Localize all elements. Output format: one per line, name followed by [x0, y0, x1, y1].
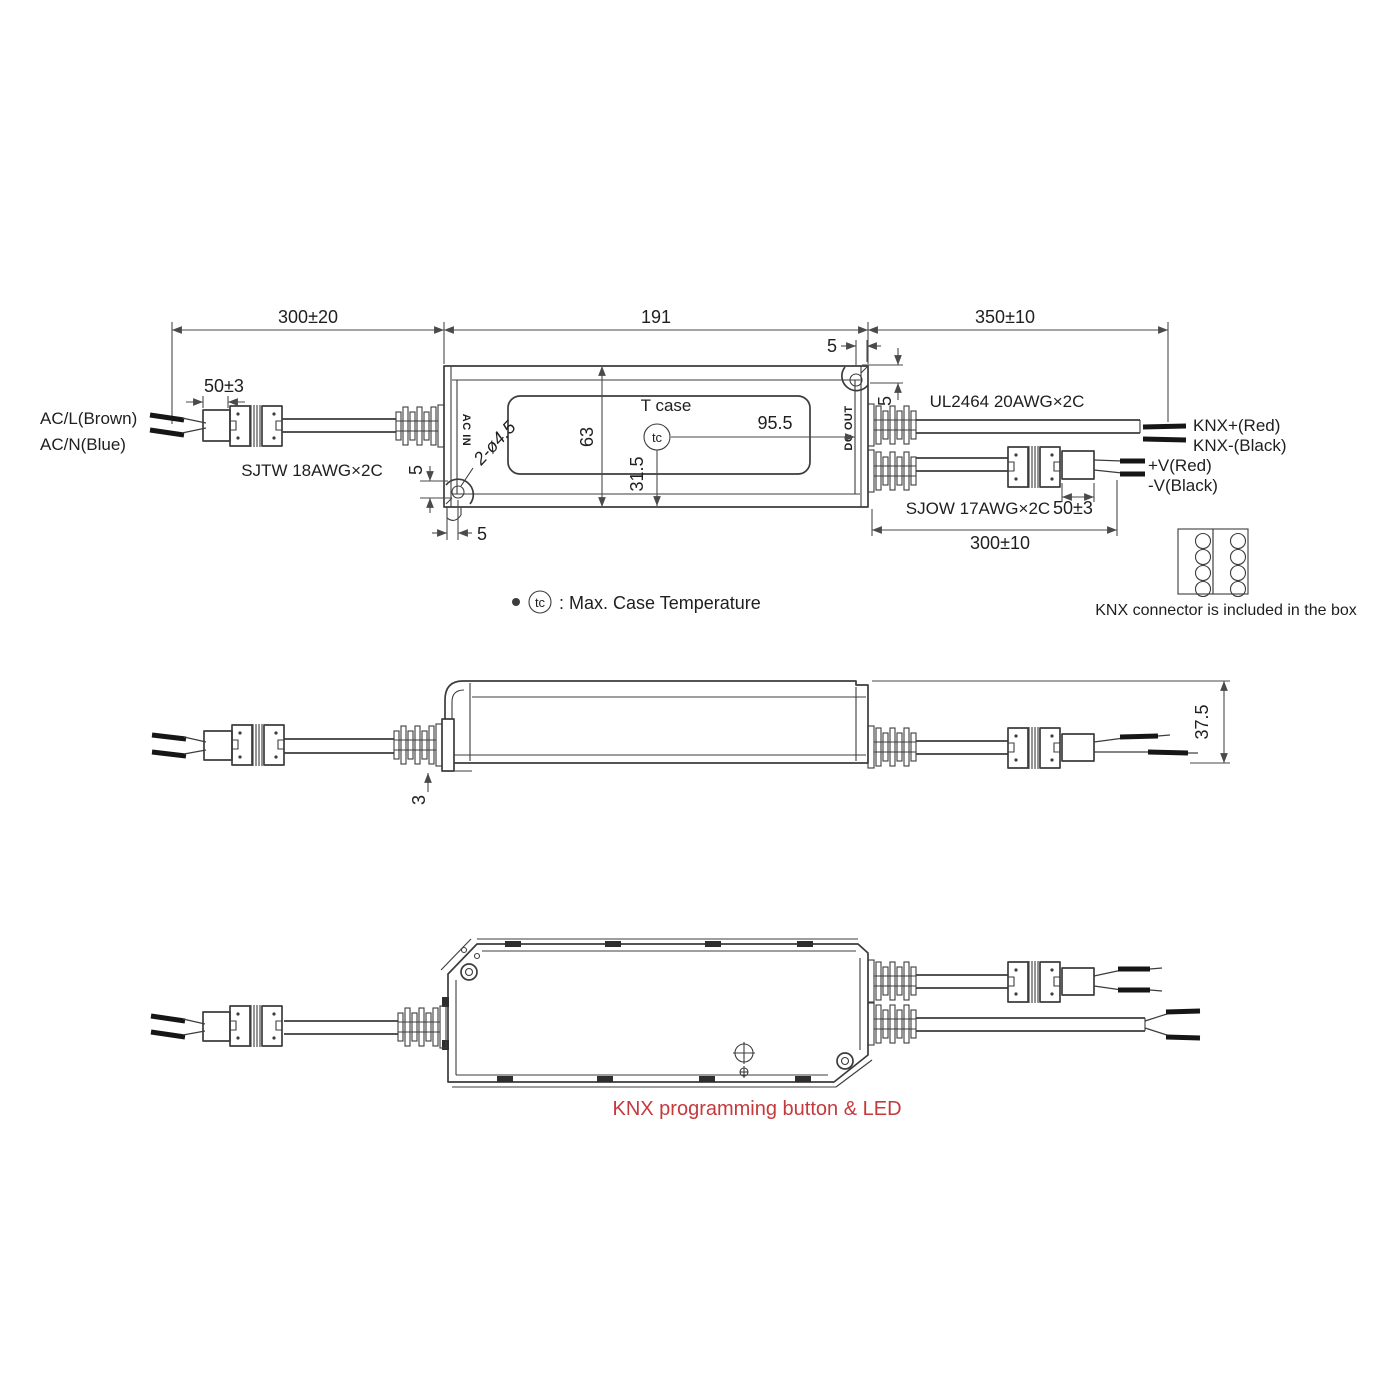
svg-text:5: 5 [875, 396, 895, 406]
output-cable-type: SJOW 17AWG×2C [906, 499, 1050, 518]
knx-plus-label: KNX+(Red) [1193, 416, 1280, 435]
knx-cable-assembly: UL2464 20AWG×2C KNX+(Red) KNX-(Black) [868, 392, 1287, 455]
svg-text:5: 5 [477, 524, 487, 544]
tcase-title: T case [641, 396, 692, 415]
bottom-caption: KNX programming button & LED [612, 1098, 901, 1120]
dim-95-5: 95.5 [757, 413, 792, 433]
input-cable-type: SJTW 18AWG×2C [241, 461, 383, 480]
knx-connector-icon [1178, 529, 1248, 597]
output-strain-relief [868, 450, 916, 492]
svg-text:63: 63 [577, 427, 597, 447]
side-output-connector [1008, 727, 1060, 769]
notes: tc : Max. Case Temperature KNX connector… [512, 529, 1357, 619]
dim-height-63: 63 [577, 366, 602, 507]
ac-in-label: AC IN [460, 414, 472, 446]
technical-drawing: AC IN DC OUT T case tc 95.5 31.5 63 2-ø4… [0, 0, 1400, 1400]
bottom-output-strain-relief [868, 960, 916, 1002]
knx-minus-label: KNX-(Black) [1193, 436, 1287, 455]
cable-sleeve [203, 410, 230, 441]
bottom-case [448, 944, 868, 1082]
bottom-input-connector [230, 1005, 282, 1047]
svg-text:5: 5 [827, 336, 837, 356]
bottom-output-connector [1008, 961, 1060, 1003]
output-ferrule [1062, 451, 1094, 479]
output-cable-assembly: +V(Red) -V(Black) SJOW 17AWG×2C 50±3 300… [868, 446, 1218, 553]
input-strain-relief [396, 405, 444, 447]
dim-31-5: 31.5 [627, 456, 647, 491]
side-case [445, 681, 868, 763]
knx-cable-type: UL2464 20AWG×2C [930, 392, 1085, 411]
dim-input-length: 300±20 [278, 307, 338, 327]
svg-text:2-ø4.5: 2-ø4.5 [469, 416, 520, 469]
dim-output-cable: 300±10 [970, 533, 1030, 553]
tcase-marking: T case tc 95.5 31.5 [627, 396, 855, 506]
dim-case-height: 37.5 [1192, 704, 1212, 739]
bottom-view: KNX programming button & LED [151, 939, 1200, 1120]
v-plus-label: +V(Red) [1148, 456, 1212, 475]
dim-ear-top-right: 5 5 [827, 336, 903, 406]
output-connector [1008, 446, 1060, 488]
acl-label: AC/L(Brown) [40, 409, 137, 428]
input-cable-assembly: 50±3 AC/L(Brown) AC/N(Blue) SJTW 18AWG×2… [40, 376, 444, 480]
side-input-connector [232, 724, 284, 766]
dc-out-label: DC OUT [843, 405, 855, 450]
mounting-ear-bottom-left [446, 479, 473, 520]
input-connector [230, 405, 282, 447]
knx-connector-note: KNX connector is included in the box [1095, 602, 1356, 619]
tc-symbol: tc [652, 430, 663, 445]
bottom-input-strain-relief [398, 1006, 446, 1048]
top-view: AC IN DC OUT T case tc 95.5 31.5 63 2-ø4… [40, 307, 1287, 553]
case-tabs [442, 941, 813, 1082]
dim-output-connector: 50±3 [1053, 498, 1093, 518]
bullet-icon [512, 598, 520, 606]
dim-flange: 3 [409, 795, 429, 805]
knx-strain-relief [868, 404, 916, 446]
dim-input-connector: 50±3 [204, 376, 244, 396]
v-minus-label: -V(Black) [1148, 476, 1218, 495]
dim-output-length: 350±10 [975, 307, 1035, 327]
knx-programming-button-icon [733, 1042, 755, 1078]
svg-text:5: 5 [406, 465, 426, 475]
note-tc-symbol: tc [535, 595, 546, 610]
side-output-strain-relief [868, 726, 916, 768]
bottom-knx-strain-relief [868, 1003, 916, 1045]
note-tc-text: : Max. Case Temperature [559, 593, 761, 613]
dim-ear-bottom-left: 5 5 [406, 465, 487, 544]
acn-label: AC/N(Blue) [40, 435, 126, 454]
dim-case-length: 191 [641, 307, 671, 327]
side-view: 3 37.5 [152, 681, 1230, 805]
screw-bottom-right [837, 1053, 853, 1069]
drawing-canvas: AC IN DC OUT T case tc 95.5 31.5 63 2-ø4… [0, 0, 1400, 1400]
screw-top-left [461, 948, 480, 981]
side-flange [442, 719, 454, 771]
side-input-strain-relief [394, 724, 442, 766]
